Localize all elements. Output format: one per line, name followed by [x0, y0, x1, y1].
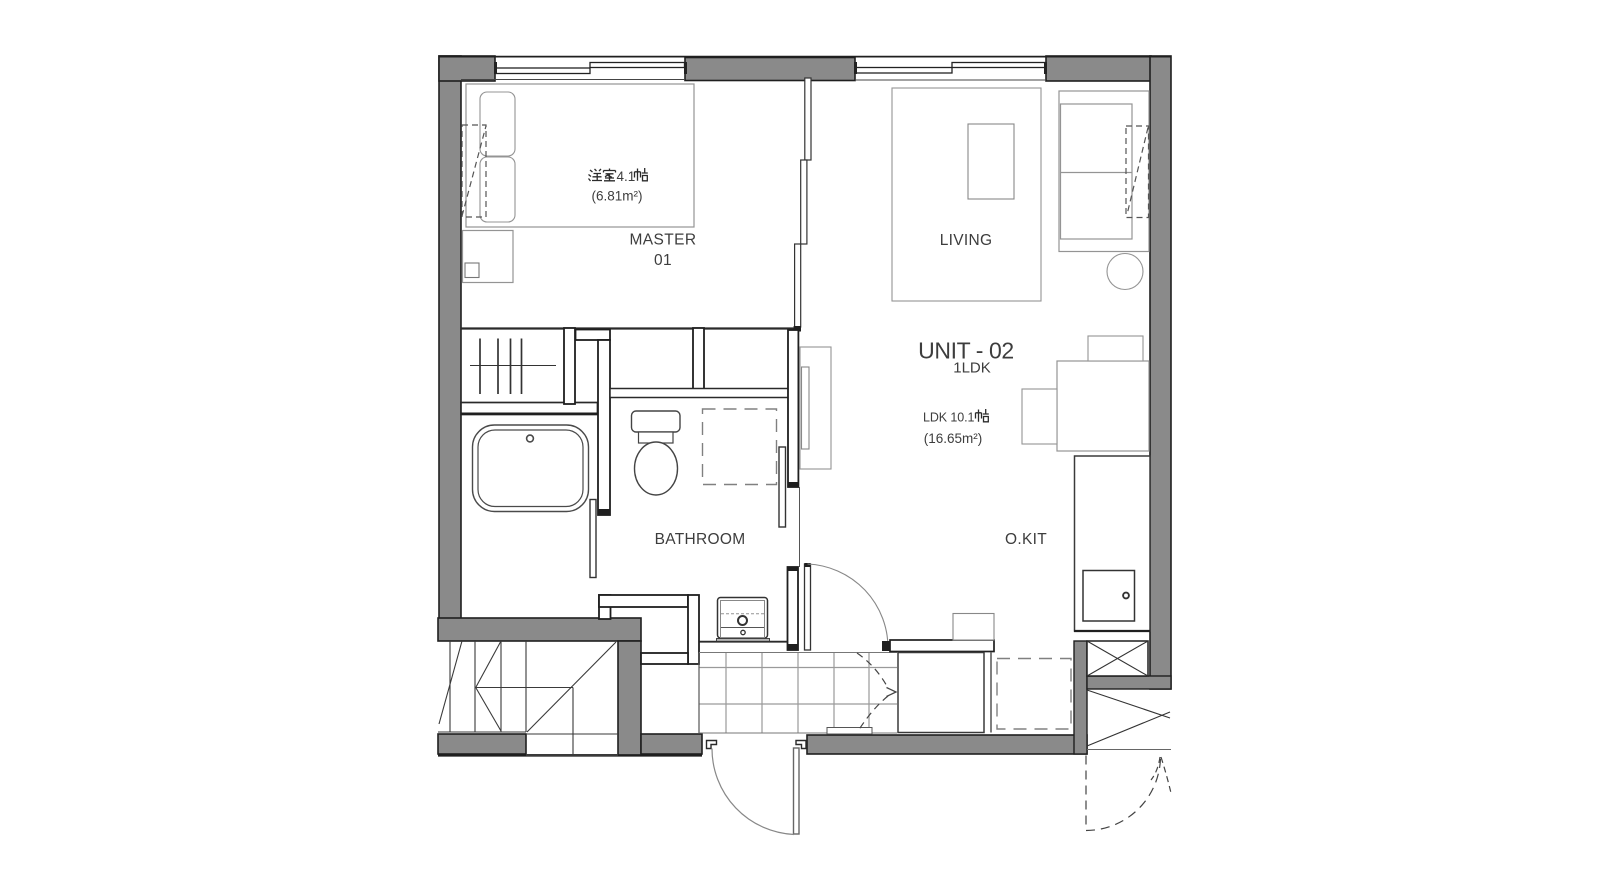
svg-text:LIVING: LIVING [940, 232, 993, 249]
svg-text:(6.81m²): (6.81m²) [591, 189, 642, 204]
svg-text:BATHROOM: BATHROOM [655, 531, 746, 548]
svg-text:O.KIT: O.KIT [1005, 531, 1047, 548]
svg-text:1LDK: 1LDK [953, 360, 991, 377]
svg-text:LDK 10.1: LDK 10.1 [923, 411, 974, 425]
svg-text:(16.65m²): (16.65m²) [924, 431, 983, 446]
svg-text:01: 01 [654, 252, 672, 269]
svg-text:MASTER: MASTER [630, 232, 697, 249]
svg-text:4.1: 4.1 [617, 169, 636, 184]
